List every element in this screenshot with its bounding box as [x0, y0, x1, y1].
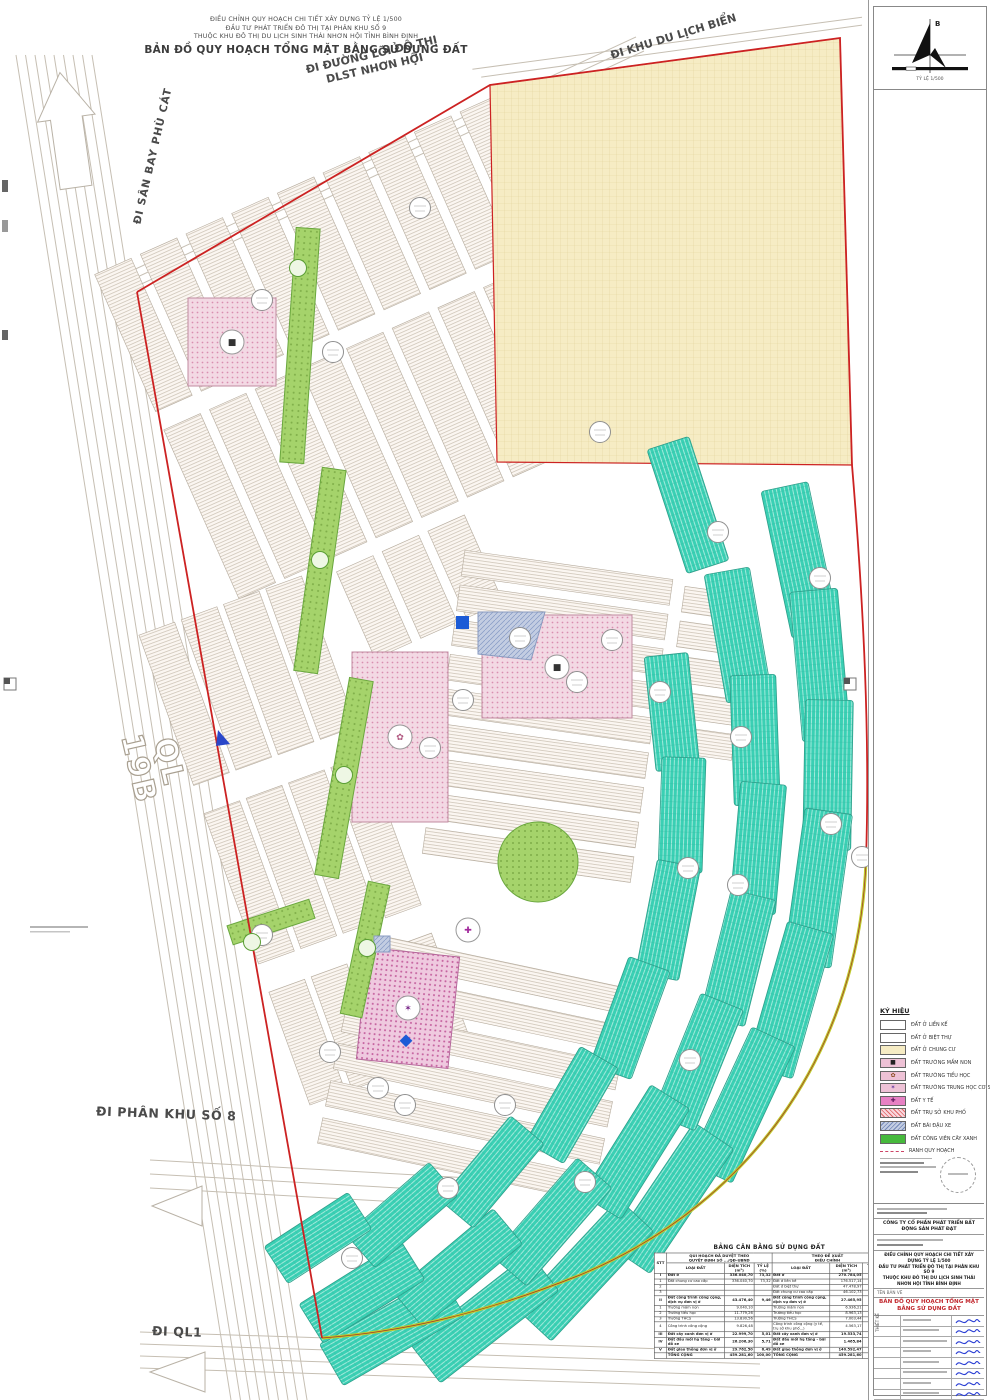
balance-row: IIIĐất cây xanh đơn vị ở22.999,705,01 Đấ…	[654, 1332, 883, 1338]
signature-row	[874, 1348, 984, 1359]
project-name: ĐIỀU CHỈNH QUY HOẠCH CHI TIẾT XÂY DỰNG T…	[874, 1251, 984, 1289]
block-label	[395, 1095, 416, 1116]
title-block: CÔNG TY CỔ PHẦN PHÁT TRIỂN BẤT ĐỘNG SẢN …	[874, 1203, 984, 1400]
north-arrow-block: B TỶ LỆ 1/500	[874, 11, 986, 90]
signature-row	[874, 1358, 984, 1369]
block-label	[510, 628, 531, 649]
legend-swatch: ✿	[880, 1071, 906, 1081]
legend-label: ĐẤT Ở LIỀN KẾ	[911, 1022, 947, 1028]
signature-row	[874, 1337, 984, 1348]
legend-item: ĐẤT TRỤ SỞ KHU PHỐ	[880, 1107, 980, 1120]
block-label	[410, 198, 431, 219]
edge-mark	[2, 220, 8, 232]
legend-item: ĐẤT Ở CHUNG CƯ	[880, 1044, 980, 1057]
block-label	[320, 1042, 341, 1063]
legend-label: ĐẤT TRƯỜNG TRUNG HỌC CƠ SỞ	[911, 1085, 990, 1091]
balance-row: IIĐất công trình công cộng, dịch vụ đơn …	[654, 1296, 883, 1306]
park-label	[244, 934, 261, 951]
legend-label: ĐẤT Ở BIỆT THỰ	[911, 1035, 952, 1041]
sidebar-frame: B TỶ LỆ 1/500 KÝ HIỆU ĐẤT Ở LIỀN KẾĐẤT Ở…	[873, 6, 987, 1396]
header-line-3: THUỘC KHU ĐÔ THỊ DU LỊCH SINH THÁI NHƠN …	[138, 33, 474, 42]
land-balance-table: STT QUI HOẠCH ĐÃ DUYỆT THEOQUYẾT ĐỊNH SỐ…	[654, 1253, 883, 1359]
map-shape	[4, 678, 10, 684]
legend-swatch	[880, 1134, 906, 1144]
stamp-text-line	[880, 1171, 918, 1173]
facility-glyph: ■	[228, 338, 237, 348]
sheet-title: BẢN ĐỒ QUY HOẠCH TỔNG MẶT BẰNG SỬ DỤNG Đ…	[138, 44, 474, 56]
block-label	[495, 1095, 516, 1116]
drawing-title: BẢN ĐỒ QUY HOẠCH TỔNG MẶT BẰNG SỬ DỤNG Đ…	[874, 1298, 984, 1317]
map-symbol-blue	[456, 616, 469, 629]
stamp-text-line	[880, 1162, 924, 1164]
block-label	[567, 672, 588, 693]
header-line-1: ĐIỀU CHỈNH QUY HOẠCH CHI TIẾT XÂY DỰNG T…	[138, 16, 474, 25]
legend-swatch	[880, 1151, 904, 1152]
design-label: THIẾT KẾ	[875, 1313, 880, 1332]
legend-swatch	[880, 1020, 906, 1030]
balance-row: IVĐất đầu mối hạ tầng - bãi đỗ xe26.206,…	[654, 1338, 883, 1348]
facility-glyph: ✚	[464, 926, 472, 936]
seal-icon	[940, 1157, 976, 1193]
legend-label: RANH QUY HOẠCH	[909, 1148, 954, 1154]
approval-stamp-block	[880, 1155, 980, 1201]
road-direction-arrow	[31, 69, 105, 192]
legend-item: ĐẤT Ở LIỀN KẾ	[880, 1019, 980, 1032]
land-balance-table-wrap: BẢNG CÂN BẰNG SỬ DỤNG ĐẤT STT QUI HOẠCH …	[654, 1244, 886, 1400]
signature-scribble	[952, 1369, 984, 1379]
svg-text:B: B	[935, 20, 940, 28]
investor-name: CÔNG TY CỔ PHẦN PHÁT TRIỂN BẤT ĐỘNG SẢN …	[874, 1219, 984, 1235]
block-label	[650, 682, 671, 703]
block-label	[680, 1050, 701, 1071]
facility-glyph: ■	[553, 663, 562, 673]
legend-title: KÝ HIỆU	[880, 1007, 980, 1015]
balance-row: TỔNG CỘNG459.281,60100,00 TỔNG CỘNG459.2…	[654, 1353, 883, 1359]
stamp-text-line	[880, 1166, 936, 1168]
legend-item: ✚ĐẤT Y TẾ	[880, 1095, 980, 1108]
signature-row	[874, 1369, 984, 1380]
title-block-row	[874, 1235, 984, 1250]
legend-swatch	[880, 1045, 906, 1055]
ql1-arrow	[150, 1352, 205, 1392]
block-label	[342, 1248, 363, 1269]
signature-scribble	[952, 1337, 984, 1347]
block-label	[590, 422, 611, 443]
signature-row	[874, 1316, 984, 1327]
road-label-ql1: ĐI QL1	[152, 1323, 203, 1340]
legend-item: ĐẤT Ở BIỆT THỰ	[880, 1032, 980, 1045]
legend-swatch: ✶	[880, 1083, 906, 1093]
title-block-row	[874, 1204, 984, 1219]
park-label	[359, 940, 376, 957]
plan-sheet: ĐIỀU CHỈNH QUY HOẠCH CHI TIẾT XÂY DỰNG T…	[0, 0, 990, 1400]
signature-scribble	[952, 1327, 984, 1337]
legend-swatch	[880, 1033, 906, 1043]
scale-caption: TỶ LỆ 1/500	[874, 77, 986, 82]
block-label	[821, 814, 842, 835]
legend-label: ĐẤT TRỤ SỞ KHU PHỐ	[911, 1110, 966, 1116]
park-circle	[498, 822, 578, 902]
legend-swatch	[880, 1121, 906, 1131]
apartment-zone	[490, 38, 852, 465]
stamp-text-line	[880, 1158, 932, 1160]
legend-label: ĐẤT CÔNG VIÊN CÂY XANH	[911, 1136, 977, 1142]
block-label	[602, 630, 623, 651]
block-label	[368, 1078, 389, 1099]
villa-block	[658, 757, 706, 873]
block-label	[252, 290, 273, 311]
signature-scribble	[952, 1316, 984, 1326]
balance-table-title: BẢNG CÂN BẰNG SỬ DỤNG ĐẤT	[654, 1244, 885, 1251]
balance-row: 4Công trình công cộng9.826,48 Công trình…	[654, 1322, 883, 1332]
signature-scribble	[952, 1358, 984, 1368]
facility-glyph: ✿	[396, 733, 404, 743]
plan-map-canvas: ■✿■✶✚	[0, 0, 870, 1400]
subzone8-arrow	[152, 1186, 202, 1226]
block-label	[708, 522, 729, 543]
block-label	[323, 342, 344, 363]
legend-item: ✶ĐẤT TRƯỜNG TRUNG HỌC CƠ SỞ	[880, 1082, 980, 1095]
sheet-header: ĐIỀU CHỈNH QUY HOẠCH CHI TIẾT XÂY DỰNG T…	[138, 16, 474, 56]
legend-label: ĐẤT Ở CHUNG CƯ	[911, 1047, 956, 1053]
legend-item: ■ĐẤT TRƯỜNG MẦM NON	[880, 1057, 980, 1070]
signature-scribble	[952, 1379, 984, 1389]
signature-scribble	[952, 1390, 984, 1400]
signature-row	[874, 1390, 984, 1400]
legend-swatch: ✚	[880, 1096, 906, 1106]
park-label	[312, 552, 329, 569]
legend-label: ĐẤT TRƯỜNG MẦM NON	[911, 1060, 971, 1066]
legend-item: ✿ĐẤT TRƯỜNG TIỂU HỌC	[880, 1069, 980, 1082]
signature-row	[874, 1379, 984, 1390]
block-label	[438, 1178, 459, 1199]
map-shape	[844, 678, 850, 684]
sidebar: B TỶ LỆ 1/500 KÝ HIỆU ĐẤT Ở LIỀN KẾĐẤT Ở…	[868, 0, 990, 1400]
park-label	[290, 260, 307, 277]
legend-item: ĐẤT CÔNG VIÊN CÂY XANH	[880, 1132, 980, 1145]
signature-scribble	[952, 1348, 984, 1358]
block-label	[678, 858, 699, 879]
facility-glyph: ✶	[404, 1004, 412, 1014]
edge-mark	[2, 330, 8, 340]
block-label	[731, 727, 752, 748]
park-label	[336, 767, 353, 784]
legend-label: ĐẤT TRƯỜNG TIỂU HỌC	[911, 1073, 970, 1079]
legend-label: ĐẤT Y TẾ	[911, 1098, 933, 1104]
margin-note-line	[30, 926, 88, 928]
balance-row: VĐất giao thông đơn vị ở29.762,506,49 Đấ…	[654, 1347, 883, 1353]
block-label	[728, 875, 749, 896]
block-label	[575, 1172, 596, 1193]
edge-mark	[2, 180, 8, 192]
header-line-2: ĐẦU TƯ PHÁT TRIỂN ĐÔ THỊ TẠI PHÂN KHU SỐ…	[138, 25, 474, 34]
block-label	[453, 690, 474, 711]
housing-zone-mid	[422, 550, 755, 894]
balance-row: 1Đất chung cư cao cấp336.040,7073,32 Đất…	[654, 1279, 883, 1285]
margin-note-line	[30, 931, 70, 933]
legend-item: ĐẤT BÃI ĐẬU XE	[880, 1120, 980, 1133]
legend-label: ĐẤT BÃI ĐẬU XE	[911, 1123, 951, 1129]
legend-swatch	[880, 1108, 906, 1118]
drawing-name-label: TÊN BẢN VẼ	[874, 1289, 984, 1298]
legend-swatch: ■	[880, 1058, 906, 1068]
block-label	[420, 738, 441, 759]
parking-area	[374, 936, 390, 952]
signature-row	[874, 1327, 984, 1338]
legend: KÝ HIỆU ĐẤT Ở LIỀN KẾĐẤT Ở BIỆT THỰĐẤT Ở…	[880, 1007, 980, 1158]
signature-grid: THIẾT KẾ	[874, 1316, 984, 1400]
block-label	[810, 568, 831, 589]
